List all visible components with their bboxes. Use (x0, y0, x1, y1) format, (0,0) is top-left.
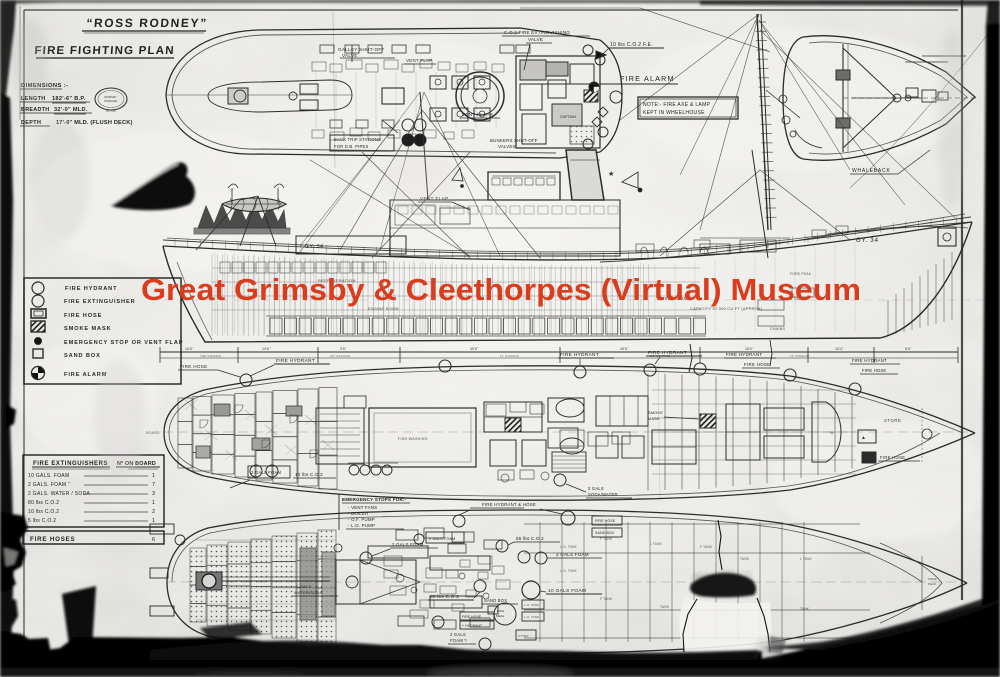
svg-text:VENT FLAPS: VENT FLAPS (462, 112, 493, 117)
svg-text:FIRE HYDRANT & HOSE: FIRE HYDRANT & HOSE (482, 502, 536, 507)
svg-text:80 lbs C.O.2: 80 lbs C.O.2 (28, 500, 59, 506)
svg-text:OTTER: OTTER (518, 634, 529, 638)
svg-text:L TANK: L TANK (650, 542, 663, 546)
svg-text:F TANK: F TANK (700, 545, 713, 549)
svg-text:2 GALS: 2 GALS (450, 632, 466, 637)
svg-text:GY. 34: GY. 34 (305, 244, 324, 250)
svg-text:EMERGENCY STOP OR VENT FLA: EMERGENCY STOP OR VENT FLAP (64, 340, 183, 346)
svg-text:16'4": 16'4" (835, 347, 844, 351)
svg-text:SODA/WATER: SODA/WATER (588, 492, 618, 497)
svg-text:▲: ▲ (861, 435, 866, 441)
svg-text:2 GALS FOAM: 2 GALS FOAM (556, 552, 589, 557)
svg-text:Great Grimsby & Cleethorpes (V: Great Grimsby & Cleethorpes (Virtual) Mu… (141, 272, 861, 307)
svg-text:FIRE HOSE: FIRE HOSE (64, 313, 102, 319)
svg-text:GRIMSBY: GRIMSBY (104, 95, 117, 99)
svg-text:★: ★ (608, 170, 615, 178)
svg-text:TANK: TANK (740, 557, 750, 561)
svg-text:“ROSS RODNEY”: “ROSS RODNEY” (86, 16, 208, 30)
svg-text:W: W (830, 430, 834, 435)
svg-text:MEAL: MEAL (496, 614, 505, 618)
svg-text:56 lbs C.O.2: 56 lbs C.O.2 (516, 536, 544, 541)
svg-text:10 GALS. FOAM: 10 GALS. FOAM (28, 473, 69, 479)
svg-text:No.764: No.764 (106, 109, 116, 113)
svg-text:FIRE HOSE: FIRE HOSE (595, 519, 616, 523)
svg-text:9'6": 9'6" (340, 347, 347, 351)
svg-text:2 GALS. WATER / SODA: 2 GALS. WATER / SODA (28, 491, 90, 497)
svg-text:SAND BOX: SAND BOX (595, 531, 615, 535)
svg-text:SMOKE MASK: SMOKE MASK (64, 326, 112, 332)
svg-text:L.O. TANK: L.O. TANK (524, 615, 539, 619)
svg-text:FIRE HOSE: FIRE HOSE (880, 455, 905, 460)
svg-text:F TANK: F TANK (600, 597, 613, 601)
svg-text:14'6": 14'6" (262, 347, 271, 351)
svg-text:FIRE ALARM: FIRE ALARM (64, 372, 107, 378)
svg-text:BREADTH: BREADTH (21, 107, 49, 113)
svg-text:- VENT FANS: - VENT FANS (348, 505, 377, 510)
svg-text:VALVE: VALVE (528, 37, 543, 42)
svg-text:10 lbs C.O.2: 10 lbs C.O.2 (295, 472, 323, 477)
svg-text:SAND BOX: SAND BOX (64, 353, 101, 359)
svg-text:EMERGENCY STOPS FOR:-: EMERGENCY STOPS FOR:- (342, 497, 407, 502)
svg-text:TANK: TANK (660, 605, 670, 609)
svg-text:FIRE HOSES: FIRE HOSES (30, 536, 75, 543)
svg-text:GALLEY SHUT-OFF: GALLEY SHUT-OFF (338, 47, 385, 52)
svg-text:FIRE HOSE: FIRE HOSE (862, 368, 886, 373)
svg-text:32'-0" MLD.: 32'-0" MLD. (54, 107, 88, 113)
svg-text:FIRE ALARM: FIRE ALARM (620, 74, 675, 83)
svg-text:10 GALS FOAM: 10 GALS FOAM (548, 588, 586, 594)
svg-text:VALVES: VALVES (498, 144, 516, 149)
svg-text:STORE: STORE (884, 418, 901, 423)
svg-text:2 GALS: 2 GALS (296, 584, 311, 589)
svg-text:ENGINE ROOM: ENGINE ROOM (368, 307, 399, 311)
svg-text:FIRE HYDRANT: FIRE HYDRANT (560, 352, 599, 358)
svg-text:FIRE HYDRANT: FIRE HYDRANT (726, 352, 762, 357)
svg-text:45'6": 45'6" (620, 347, 629, 351)
svg-text:CAPTAIN: CAPTAIN (560, 115, 576, 119)
svg-text:FIRE HOSE: FIRE HOSE (462, 615, 482, 619)
svg-text:1: 1 (152, 500, 155, 506)
svg-text:MASK: MASK (648, 417, 660, 421)
svg-text:2 GALS FOAM: 2 GALS FOAM (429, 537, 455, 541)
svg-text:10 lbs C.O.2: 10 lbs C.O.2 (28, 509, 59, 515)
svg-text:FOR D.B. PIPES: FOR D.B. PIPES (334, 144, 368, 149)
svg-text:F TANK: F TANK (600, 537, 613, 541)
svg-text:NOTE:- FIRE AXE & LAMP: NOTE:- FIRE AXE & LAMP (643, 102, 711, 108)
svg-text:17' STAGING: 17' STAGING (500, 354, 520, 358)
svg-text:182'-6" B.P.: 182'-6" B.P. (52, 96, 86, 102)
svg-text:WATER/SODA: WATER/SODA (294, 590, 323, 595)
svg-text:KEPT IN WHEELHOUSE: KEPT IN WHEELHOUSE (643, 110, 705, 116)
svg-text:FIRE EXTINGUISHER: FIRE EXTINGUISHER (64, 299, 136, 305)
svg-text:16'6": 16'6" (185, 347, 194, 351)
svg-text:FIRE HYDRANT: FIRE HYDRANT (648, 350, 687, 356)
svg-text:L TANK: L TANK (800, 557, 813, 561)
svg-text:17' STAGING: 17' STAGING (790, 354, 810, 358)
svg-text:L.O. TANK: L.O. TANK (524, 603, 539, 607)
svg-text:1: 1 (152, 518, 155, 524)
svg-text:7: 7 (152, 482, 155, 488)
svg-text:+ HYDRANT: + HYDRANT (462, 624, 482, 628)
svg-text:2 GALS. FOAM “: 2 GALS. FOAM “ (28, 482, 70, 488)
svg-text:CHAINS: CHAINS (770, 327, 786, 331)
svg-text:FIRE FIGHTING PLAN: FIRE FIGHTING PLAN (34, 45, 175, 57)
svg-text:PEAK: PEAK (928, 582, 936, 586)
svg-text:6: 6 (152, 537, 156, 543)
svg-text:2'0" STAGING: 2'0" STAGING (330, 354, 351, 358)
svg-text:10 lbs C.O.2 F.E.: 10 lbs C.O.2 F.E. (610, 42, 653, 48)
svg-text:FIRE EXTINGUISHERS: FIRE EXTINGUISHERS (33, 461, 108, 467)
svg-text:FIRE HOSE: FIRE HOSE (744, 362, 770, 367)
svg-text:VENT FLAP: VENT FLAP (406, 58, 433, 63)
svg-text:C.O.2 FIRE EXTINGUISHING: C.O.2 FIRE EXTINGUISHING (504, 30, 570, 35)
svg-text:2 GALS: 2 GALS (588, 486, 604, 491)
svg-text:BACK TRIP STATIONS: BACK TRIP STATIONS (334, 137, 381, 142)
svg-text:FISH: FISH (497, 609, 504, 613)
svg-text:FIRE HYDRANT: FIRE HYDRANT (65, 286, 117, 292)
svg-text:FOAM ?: FOAM ? (450, 638, 467, 643)
svg-text:80 lbs C.O.2: 80 lbs C.O.2 (430, 594, 459, 600)
svg-text:SMOKE: SMOKE (648, 411, 663, 415)
svg-text:8'6": 8'6" (905, 347, 912, 351)
svg-text:L.O. TANK: L.O. TANK (560, 545, 578, 549)
svg-text:WHALEBACK: WHALEBACK (852, 168, 891, 174)
svg-text:28'0": 28'0" (745, 347, 754, 351)
svg-text:THE STAGING: THE STAGING (200, 354, 222, 358)
svg-text:FORE: FORE (928, 577, 937, 581)
svg-text:5 lbs C.O.2: 5 lbs C.O.2 (28, 518, 56, 524)
svg-text:FIRE HYDRANT: FIRE HYDRANT (276, 358, 315, 364)
svg-text:TANK: TANK (800, 607, 810, 611)
svg-text:TRAWLER: TRAWLER (104, 99, 117, 103)
svg-text:GY. 34: GY. 34 (856, 238, 879, 244)
svg-text:- L.O. PUMP: - L.O. PUMP (348, 523, 375, 528)
svg-text:2 GALS FOAM: 2 GALS FOAM (392, 542, 424, 547)
svg-text:VALVE: VALVE (342, 53, 358, 58)
svg-text:2: 2 (152, 509, 155, 515)
svg-text:L.O. TANK: L.O. TANK (560, 569, 578, 573)
svg-text:FIRE HYDRANT: FIRE HYDRANT (852, 358, 887, 363)
svg-text:1: 1 (152, 473, 155, 479)
svg-text:DEPTH: DEPTH (21, 120, 41, 126)
svg-text:3: 3 (152, 491, 155, 497)
svg-text:BOARD: BOARD (146, 431, 160, 435)
svg-text:FISH WASHING: FISH WASHING (398, 437, 428, 441)
svg-text:BUNKERS SHUT-OFF: BUNKERS SHUT-OFF (490, 138, 538, 143)
svg-text:FIRE HOSE: FIRE HOSE (180, 364, 207, 369)
svg-text:45'6": 45'6" (470, 347, 479, 351)
